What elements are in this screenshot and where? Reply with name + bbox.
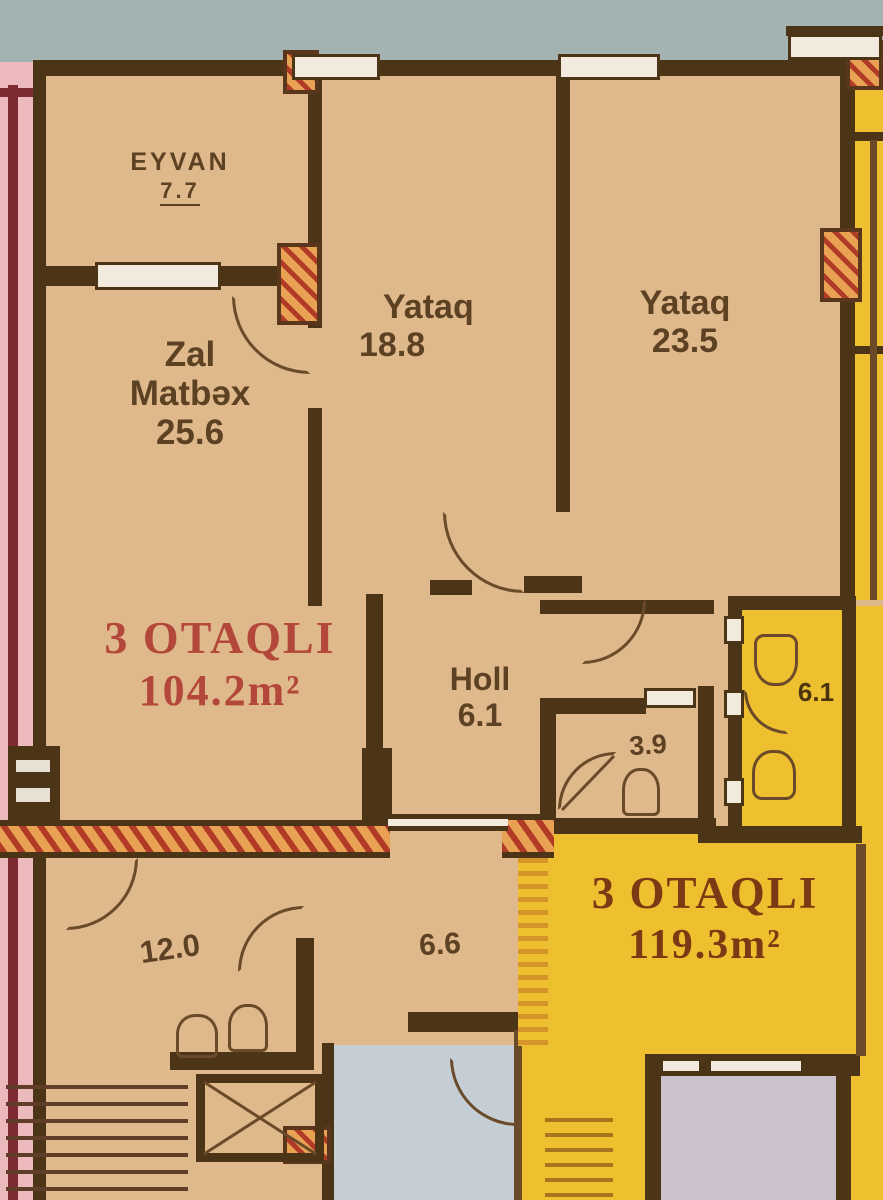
door-arc xyxy=(582,600,646,664)
door-arc xyxy=(66,858,138,930)
apartment-a-type: 3 OTAQLI xyxy=(104,612,335,663)
room-label-zal: Zal Matbəx 25.6 xyxy=(85,335,295,453)
toilet xyxy=(228,1004,268,1052)
apartment-b-label: 3 OTAQLI 119.3m² xyxy=(545,868,865,969)
holl-name: Holl xyxy=(450,661,510,697)
wall-segment xyxy=(698,686,714,830)
wall-tick xyxy=(853,346,883,354)
wall-segment xyxy=(842,596,856,843)
room-label-santex: 3.9 xyxy=(617,728,679,762)
stair-hatch xyxy=(545,1118,613,1200)
door-opening xyxy=(308,328,322,408)
room-label-yataq-23: Yataq 23.5 xyxy=(600,284,770,360)
wall-segment xyxy=(408,1012,520,1032)
wall-segment xyxy=(540,698,556,830)
yataq2-name: Yataq xyxy=(640,284,731,322)
window xyxy=(724,690,744,718)
apartment-b-strip xyxy=(853,90,883,600)
wall-segment xyxy=(524,576,582,593)
sink xyxy=(752,750,796,800)
stair-wall-line xyxy=(0,88,33,97)
bath-b-area: 6.1 xyxy=(798,677,834,707)
zal-name-line1: Zal xyxy=(165,335,216,374)
window xyxy=(788,34,882,60)
toilet xyxy=(622,768,660,816)
wall-segment xyxy=(540,818,716,834)
wall-segment xyxy=(698,826,862,843)
window xyxy=(724,778,744,806)
eyvan-name: EYVAN xyxy=(130,148,229,176)
sink xyxy=(176,1014,218,1058)
window xyxy=(708,1058,804,1074)
window xyxy=(95,262,221,290)
wall-segment xyxy=(836,1076,851,1200)
window xyxy=(388,814,508,831)
window xyxy=(660,1058,702,1074)
wall-segment xyxy=(33,60,855,76)
zal-area: 25.6 xyxy=(156,413,224,452)
stair-wall-line xyxy=(8,85,18,1200)
window xyxy=(644,688,696,708)
eyvan-area: 7.7 xyxy=(160,179,200,206)
room-label-holl: Holl 6.1 xyxy=(420,662,540,734)
sky-background xyxy=(0,0,883,62)
room-label-bath-b: 6.1 xyxy=(786,678,846,707)
beam-hatch xyxy=(0,820,390,858)
stair-treads xyxy=(6,1085,188,1200)
floor-plan-canvas: EYVAN 7.7 Zal Matbəx 25.6 Yataq 18.8 Yat… xyxy=(0,0,883,1200)
wall-segment xyxy=(362,748,392,824)
santex-area: 3.9 xyxy=(628,729,668,762)
wall-segment xyxy=(430,580,472,595)
room-label-12: 12.0 xyxy=(123,926,217,973)
shower-door-arc xyxy=(558,752,616,810)
room-label-eyvan: EYVAN 7.7 xyxy=(105,148,255,206)
room-12-area: 12.0 xyxy=(138,927,203,970)
room-66-area: 6.6 xyxy=(418,927,461,962)
yataq1-name: Yataq xyxy=(383,288,474,326)
yataq2-area: 23.5 xyxy=(652,322,718,360)
wall-segment xyxy=(728,596,856,610)
apartment-b-area: 119.3m² xyxy=(628,922,782,968)
wall-segment xyxy=(556,76,570,512)
column-hatch xyxy=(820,228,862,302)
window xyxy=(558,54,660,80)
junction-slot xyxy=(16,760,50,772)
window xyxy=(724,616,744,644)
apartment-a-area: 104.2m² xyxy=(139,666,302,715)
room-label-66: 6.6 xyxy=(404,926,476,963)
zal-name-line2: Matbəx xyxy=(130,374,251,413)
wall-line xyxy=(870,140,877,600)
beam-hatch xyxy=(502,814,554,858)
apartment-b-type: 3 OTAQLI xyxy=(592,868,818,918)
door-arc xyxy=(238,906,304,972)
party-wall-hatch xyxy=(518,858,548,1046)
wall-segment xyxy=(645,1076,661,1200)
shower-tray xyxy=(196,1074,324,1162)
lavender-room xyxy=(661,1076,838,1200)
window xyxy=(292,54,380,80)
junction-slot xyxy=(16,788,50,802)
wall-tick xyxy=(853,132,883,141)
yataq1-area: 18.8 xyxy=(359,326,425,364)
holl-area: 6.1 xyxy=(458,697,502,733)
room-label-yataq-18: Yataq 18.8 xyxy=(355,288,543,364)
wall-segment xyxy=(33,62,46,1200)
apartment-a-label: 3 OTAQLI 104.2m² xyxy=(60,612,380,715)
